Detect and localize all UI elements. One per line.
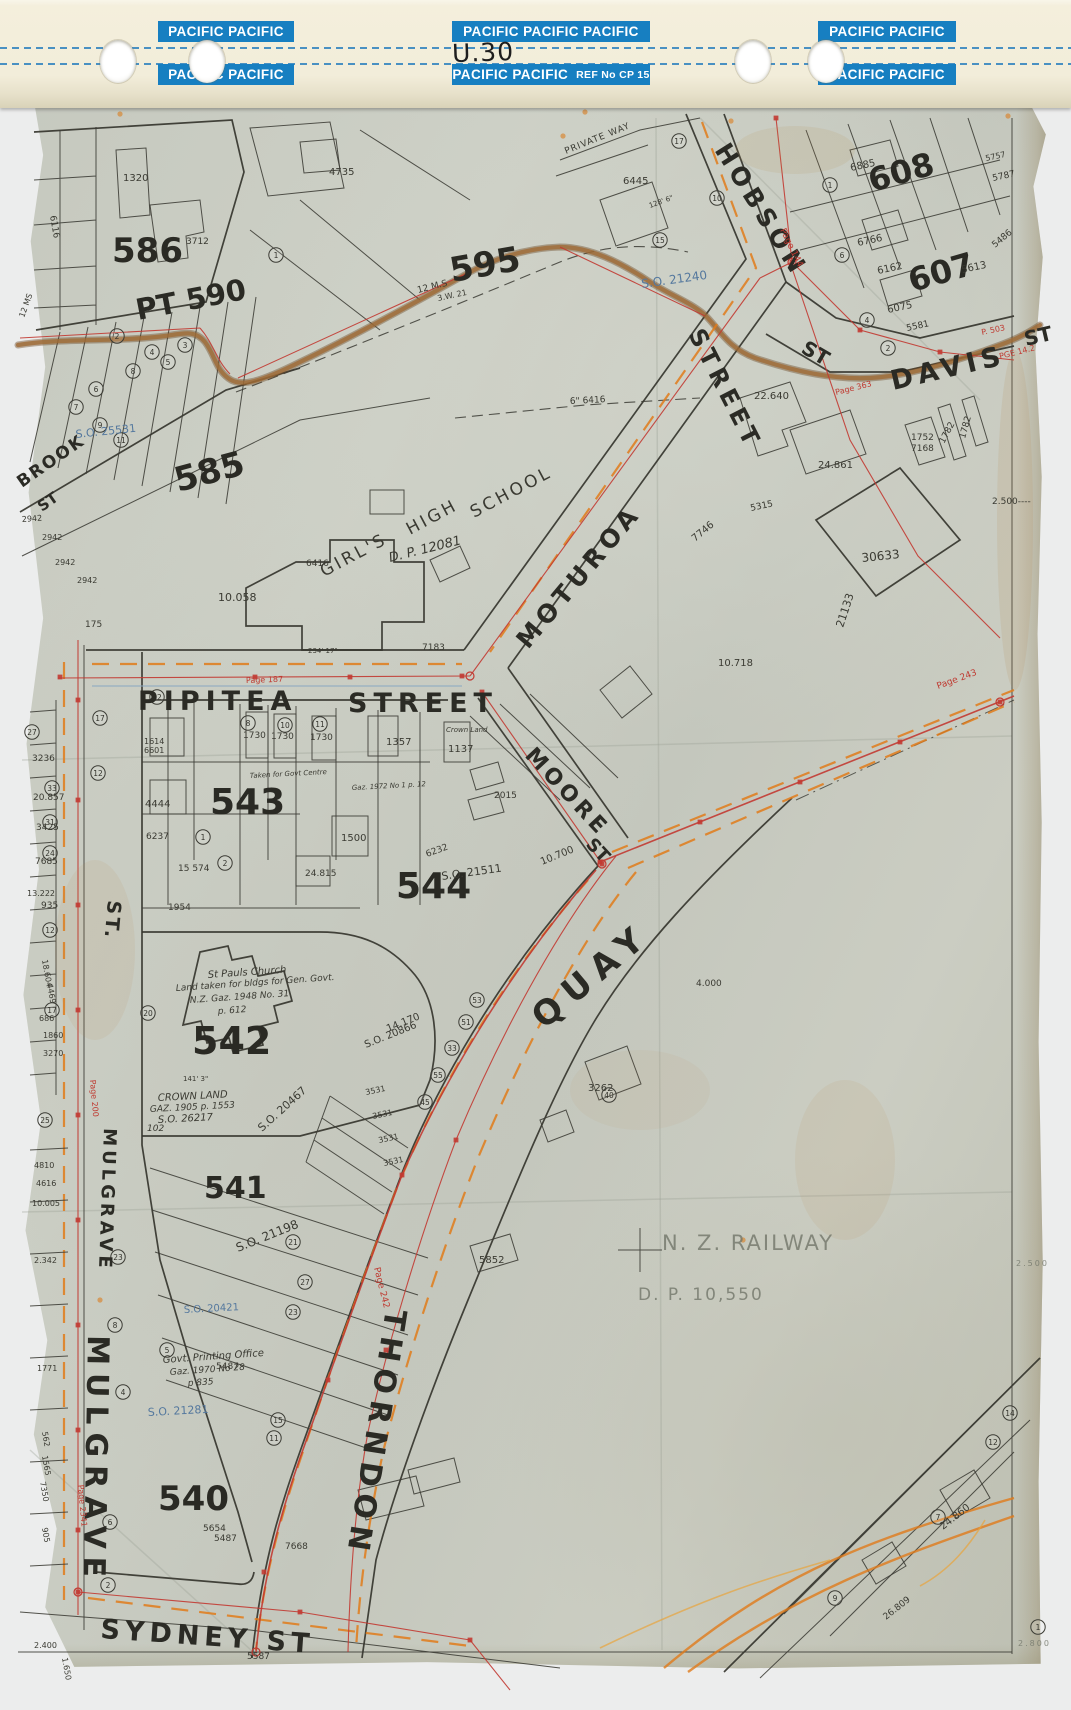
paper-bottom-shading bbox=[12, 1644, 1050, 1670]
pacific-tape: PACIFIC PACIFIC bbox=[158, 21, 294, 42]
punch-hole bbox=[808, 40, 844, 83]
map-sheet-paper bbox=[12, 100, 1050, 1670]
ref-number-label: REF No CP 15 bbox=[576, 69, 649, 81]
punch-hole bbox=[100, 40, 136, 83]
paper-edge-shading bbox=[1016, 100, 1050, 1670]
punch-hole bbox=[189, 40, 225, 83]
sheet-code-handwritten: U.30 bbox=[452, 37, 515, 68]
map-label: 1.650 bbox=[60, 1657, 73, 1681]
map-label: 2.400 bbox=[34, 1641, 57, 1650]
pacific-tape: PACIFIC PACIFIC bbox=[158, 64, 294, 85]
scanned-survey-sheet: { "header": { "tape_color": "#177fc1", "… bbox=[0, 0, 1071, 1710]
map-label: 905 bbox=[40, 1527, 52, 1544]
pacific-tape-ref: PACIFIC PACIFIC REF No CP 15 bbox=[452, 64, 650, 85]
dashed-rule-top bbox=[0, 47, 1071, 49]
pacific-tape-label: PACIFIC PACIFIC bbox=[452, 67, 568, 82]
map-label: 12 MS bbox=[17, 292, 34, 318]
pacific-tape: PACIFIC PACIFIC bbox=[818, 21, 956, 42]
punch-hole bbox=[735, 40, 771, 83]
binder-strip: PACIFIC PACIFIC PACIFIC PACIFIC PACIFIC … bbox=[0, 0, 1071, 108]
